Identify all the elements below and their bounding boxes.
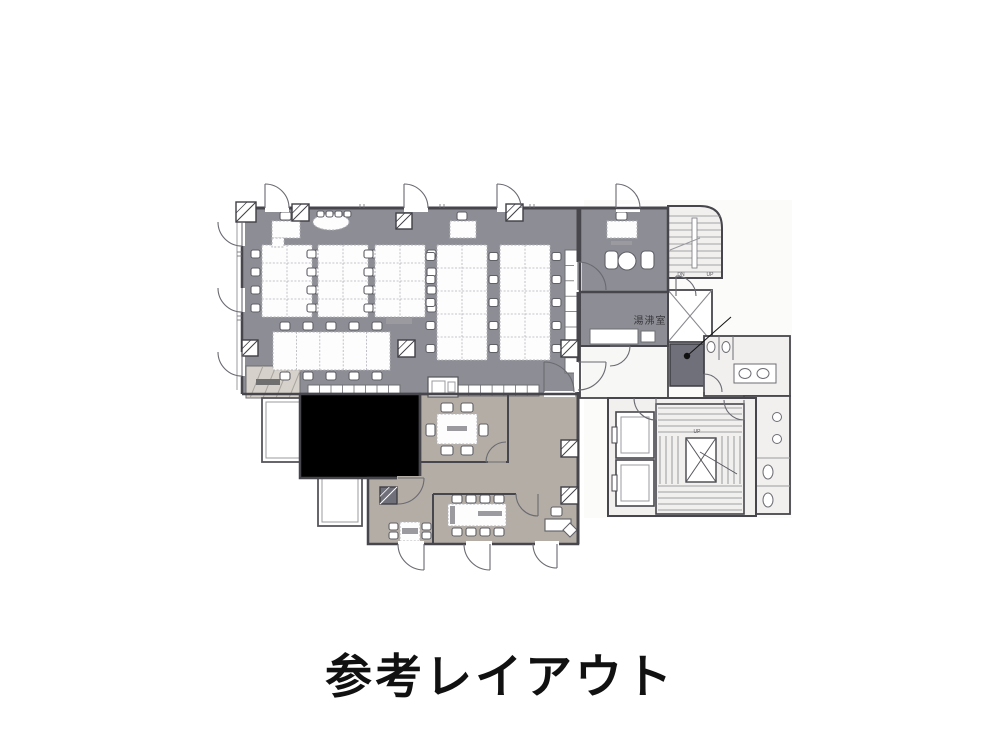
chair	[326, 372, 336, 380]
toilet-icon	[763, 465, 773, 479]
chair	[389, 532, 398, 539]
door-gap	[404, 204, 428, 212]
shaft-x	[668, 290, 712, 342]
chair	[466, 495, 476, 503]
desk-label-block	[611, 241, 632, 245]
stair-top	[668, 206, 722, 278]
chair	[422, 523, 431, 530]
chair	[251, 286, 260, 294]
chair	[480, 528, 490, 536]
chair	[335, 211, 342, 217]
toilet-icon	[763, 493, 773, 507]
chair	[307, 268, 316, 276]
chair	[452, 495, 462, 503]
page-title: 参考レイアウト	[0, 638, 1000, 707]
chair	[489, 345, 498, 353]
chair	[552, 276, 561, 284]
chair	[307, 286, 316, 294]
chair	[307, 250, 316, 258]
chair	[494, 528, 504, 536]
stair-center	[656, 404, 744, 514]
chair	[344, 211, 351, 217]
chair	[466, 528, 476, 536]
chair	[280, 372, 290, 380]
toilet-icon	[707, 342, 715, 353]
chair	[349, 322, 359, 330]
chair	[441, 446, 453, 455]
chair	[364, 286, 373, 294]
duct-shaft	[670, 344, 704, 386]
chair	[326, 322, 336, 330]
column	[396, 213, 412, 229]
chair	[461, 403, 473, 412]
chair	[426, 253, 435, 261]
chair	[372, 372, 382, 380]
chair	[426, 276, 435, 284]
chair	[489, 276, 498, 284]
armchair	[641, 251, 654, 269]
chair	[461, 446, 473, 455]
entrance-label-block	[256, 379, 280, 385]
stair-up-label: UP	[707, 272, 715, 278]
kitchenette-counter	[590, 329, 655, 344]
door-gap	[265, 204, 289, 212]
chair	[489, 322, 498, 330]
chair	[452, 528, 462, 536]
sink-icon	[641, 331, 655, 342]
table-label-block	[447, 426, 467, 431]
chair	[616, 212, 627, 220]
chair	[251, 304, 260, 312]
chair	[426, 322, 435, 330]
door-gap	[466, 541, 492, 547]
chair	[426, 299, 435, 307]
urinal-icon	[773, 435, 782, 444]
door-swing-icon	[533, 544, 557, 568]
door-swing-icon	[464, 544, 490, 570]
chair	[552, 345, 561, 353]
chair	[317, 211, 324, 217]
chair	[489, 299, 498, 307]
basin-icon	[739, 369, 751, 379]
round-table	[618, 252, 636, 270]
toilet-top	[704, 336, 790, 396]
column	[236, 202, 256, 222]
chair	[426, 424, 435, 436]
chair	[349, 372, 359, 380]
core-stair-up-label: UP	[694, 429, 702, 435]
chair	[427, 268, 436, 276]
chair	[364, 250, 373, 258]
table-label-block	[402, 528, 418, 534]
door-swing-icon	[398, 544, 424, 570]
table-label-block	[450, 506, 455, 524]
chair	[280, 212, 291, 220]
chair	[364, 304, 373, 312]
chair	[552, 253, 561, 261]
chair	[251, 250, 260, 258]
chair	[551, 507, 562, 516]
chair	[426, 345, 435, 353]
column	[561, 487, 578, 504]
chair	[494, 495, 504, 503]
door-gap	[535, 541, 559, 547]
chair	[441, 403, 453, 412]
chair	[489, 253, 498, 261]
stair-down-label: DN	[677, 272, 685, 278]
column	[242, 340, 258, 356]
chair	[364, 268, 373, 276]
table-label-block	[478, 511, 502, 516]
elevator-car	[612, 460, 654, 506]
exec-room-floor	[580, 208, 668, 292]
hall-floor	[580, 346, 668, 398]
column	[292, 204, 309, 221]
urinal-icon	[773, 413, 782, 422]
toilet-icon	[722, 342, 730, 353]
chair	[422, 532, 431, 539]
chair	[307, 304, 316, 312]
chair	[372, 322, 382, 330]
door-gap	[398, 541, 424, 547]
column-dark	[380, 487, 397, 504]
chair	[303, 372, 313, 380]
chair	[280, 322, 290, 330]
table-label-block	[386, 318, 412, 324]
chair	[303, 322, 313, 330]
stair-rail	[692, 218, 697, 268]
chair	[457, 212, 467, 220]
armchair	[605, 251, 618, 269]
small-table	[389, 522, 431, 541]
chair	[552, 299, 561, 307]
column	[561, 440, 578, 457]
column	[561, 340, 578, 357]
kitchenette-label: 湯沸室	[634, 314, 667, 327]
chair	[251, 268, 260, 276]
basin-icon	[757, 369, 769, 379]
chair	[427, 286, 436, 294]
chair	[389, 523, 398, 530]
chair	[552, 322, 561, 330]
chair	[479, 424, 488, 436]
column	[398, 340, 415, 357]
floorplan-page: 湯沸室 DN UP UP 参考レイアウト	[0, 0, 1000, 750]
chair	[480, 495, 490, 503]
chair	[326, 211, 333, 217]
